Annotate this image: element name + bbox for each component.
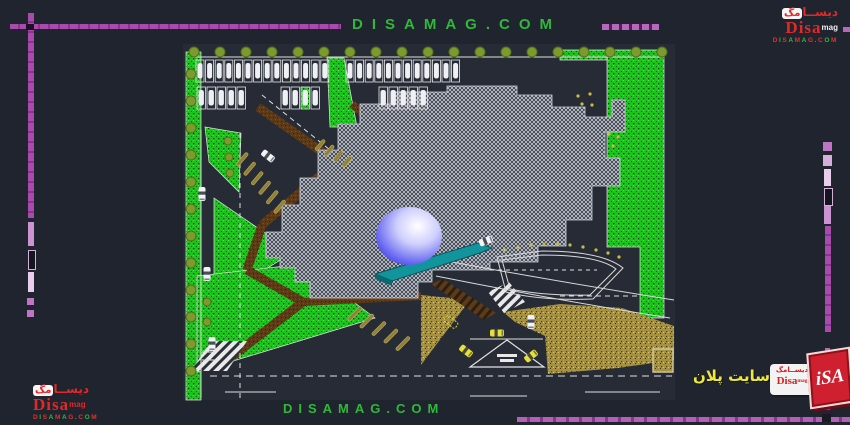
frame-corner-dot [822,414,831,422]
watermark-top: DISAMAG.COM [352,16,561,33]
logo-disamag-bottom-left: دیســامگ Disamag DISAMAG.COM [33,383,113,422]
frame-chip [28,250,36,270]
frame-chip [27,298,34,305]
logo-wordmark: Disamag [750,20,838,36]
frame-chip [28,222,34,246]
frame-bar-top [10,24,341,29]
frame-bar-bottom [517,417,850,422]
watermark-bottom: DISAMAG.COM [283,401,444,416]
dome-sphere [376,207,442,265]
frame-chip [824,169,831,186]
frame-bar-left [28,13,34,218]
frame-cross-dot [26,24,34,30]
site-plan-label: سایت پلان [640,367,770,385]
logo-url: DISAMAG.COM [750,36,838,45]
frame-chip [823,155,832,166]
frame-bar-right [825,226,831,332]
logo-isa-cube: iSA [806,347,850,410]
frame-tick-top-edge [843,27,850,32]
logo-disamag-top-right: دیســامگ Disamag DISAMAG.COM [750,6,838,45]
frame-chip [823,142,832,151]
site-plan-drawing [0,0,850,425]
cad-site-plan-page: DISAMAG.COM DISAMAG.COM دیســامگ Disamag… [0,0,850,425]
frame-chip [824,188,833,206]
logo-wordmark: Disamag [33,397,113,413]
frame-bar-top-right [602,24,659,30]
frame-chip [824,206,831,224]
frame-chip [27,310,34,317]
frame-chip [28,272,34,292]
logo-url: DISAMAG.COM [33,413,113,422]
